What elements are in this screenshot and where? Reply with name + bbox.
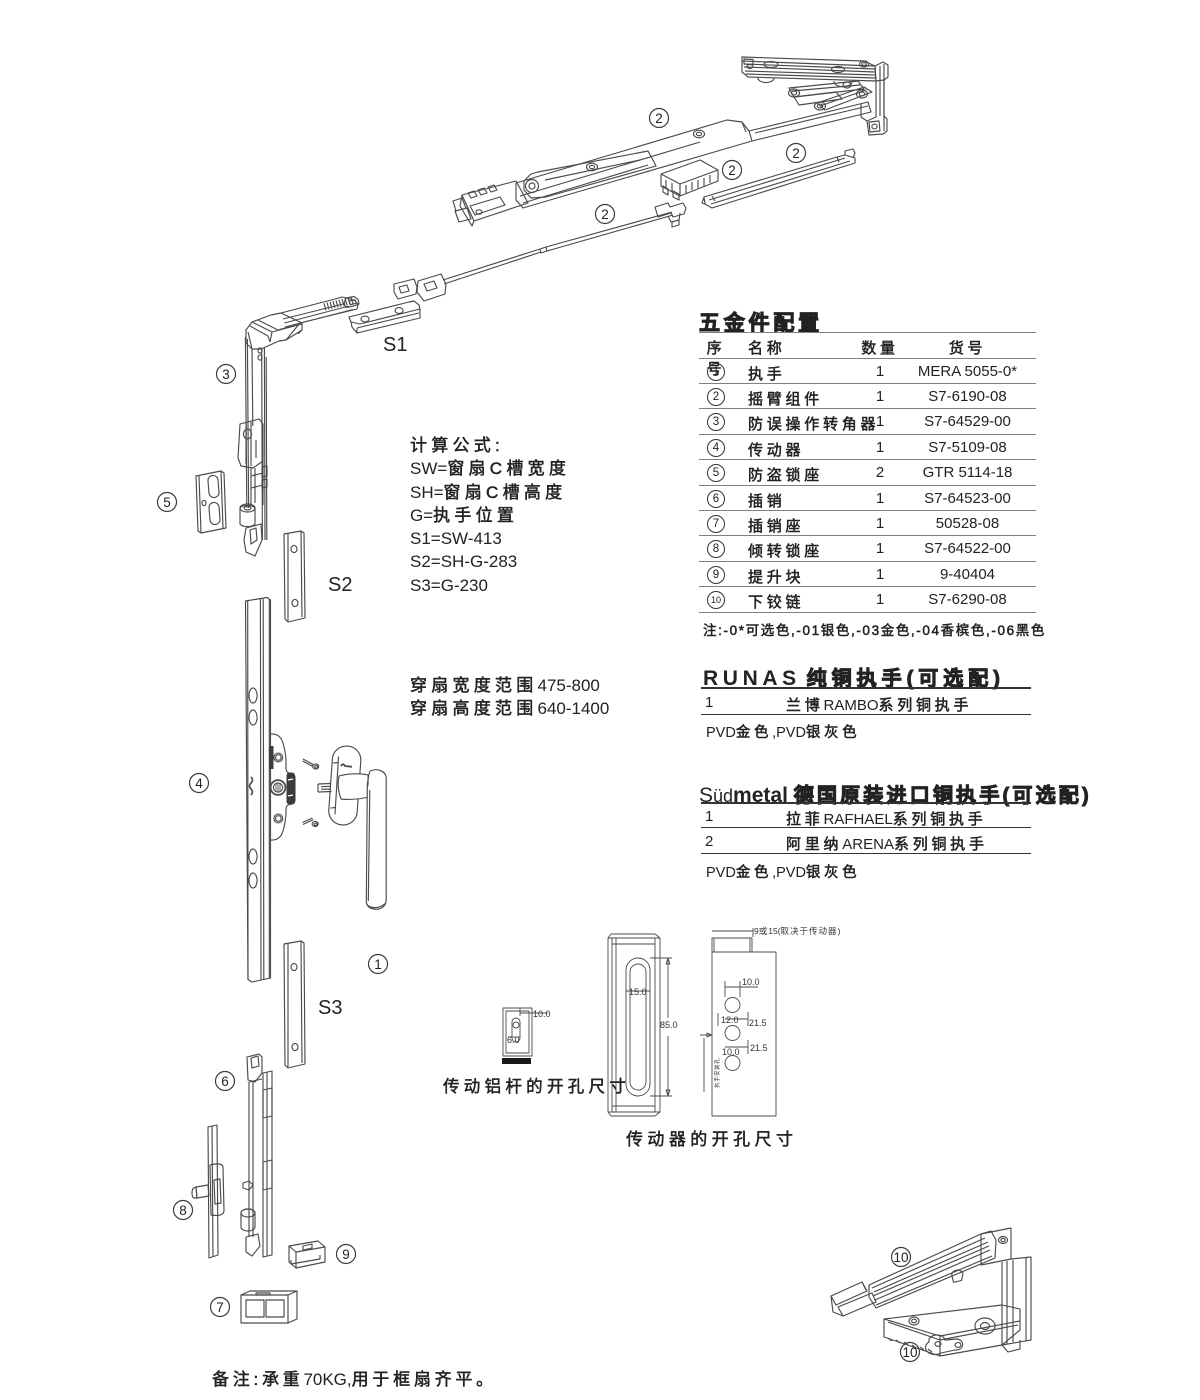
svg-text:7: 7 <box>216 1300 224 1315</box>
svg-text:10.0: 10.0 <box>722 1047 740 1057</box>
svg-text:3: 3 <box>222 367 230 382</box>
svg-text:21.5: 21.5 <box>750 1043 768 1053</box>
svg-text:10.0: 10.0 <box>533 1009 551 1019</box>
svg-text:15.0: 15.0 <box>629 987 647 997</box>
svg-text:85.0: 85.0 <box>660 1020 678 1030</box>
svg-text:8: 8 <box>179 1203 187 1218</box>
svg-text:2: 2 <box>792 146 800 161</box>
svg-text:6.0: 6.0 <box>507 1035 520 1045</box>
svg-text:5: 5 <box>163 495 171 510</box>
svg-text:21.5: 21.5 <box>749 1018 767 1028</box>
svg-text:12.0: 12.0 <box>721 1015 739 1025</box>
svg-text:10.0: 10.0 <box>742 977 760 987</box>
svg-text:执手安装孔: 执手安装孔 <box>713 1058 721 1088</box>
svg-text:9或15(取决于传动器): 9或15(取决于传动器) <box>754 926 841 936</box>
svg-text:10: 10 <box>902 1345 917 1360</box>
svg-text:2: 2 <box>601 207 609 222</box>
svg-text:10: 10 <box>893 1250 908 1265</box>
svg-text:2: 2 <box>655 111 663 126</box>
svg-text:4: 4 <box>195 776 203 791</box>
svg-text:2: 2 <box>728 163 736 178</box>
svg-text:6: 6 <box>221 1074 229 1089</box>
svg-text:1: 1 <box>374 957 382 972</box>
svg-text:9: 9 <box>342 1247 350 1262</box>
